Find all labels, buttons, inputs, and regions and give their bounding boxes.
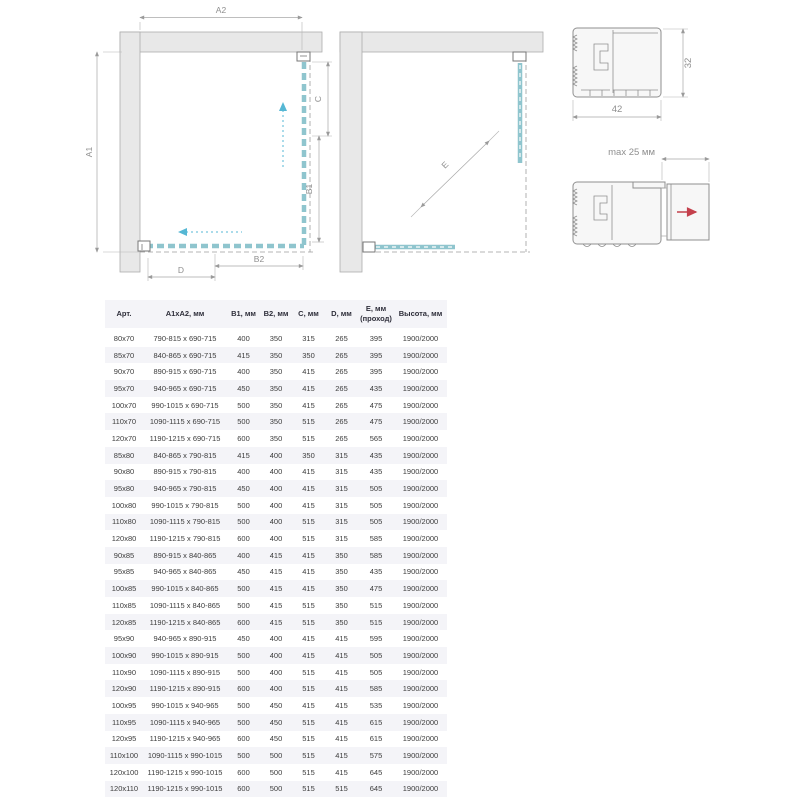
table-cell: 500 bbox=[227, 697, 260, 714]
table-cell: 415 bbox=[325, 764, 358, 781]
table-cell: 1900/2000 bbox=[394, 597, 447, 614]
table-cell: 595 bbox=[358, 630, 394, 647]
table-cell: 415 bbox=[325, 697, 358, 714]
table-cell: 110x85 bbox=[105, 597, 143, 614]
table-cell: 500 bbox=[227, 580, 260, 597]
table-cell: 1900/2000 bbox=[394, 580, 447, 597]
dimension-42: 42 bbox=[573, 100, 661, 121]
table-cell: 415 bbox=[325, 731, 358, 748]
table-cell: 500 bbox=[227, 664, 260, 681]
table-cell: 120x100 bbox=[105, 764, 143, 781]
spec-sheet-page: A2 A1 C B1 bbox=[0, 0, 800, 800]
table-cell: 505 bbox=[358, 514, 394, 531]
table-cell: 840-865 x 690-715 bbox=[143, 347, 227, 364]
table-cell: 90x70 bbox=[105, 363, 143, 380]
table-cell: 435 bbox=[358, 447, 394, 464]
dimension-b1: B1 bbox=[304, 136, 324, 242]
plan-view-closed: A2 A1 C B1 bbox=[84, 5, 332, 281]
table-cell: 1900/2000 bbox=[394, 329, 447, 347]
table-cell: 400 bbox=[227, 464, 260, 481]
table-cell: 1900/2000 bbox=[394, 614, 447, 631]
table-cell: 1190-1215 x 790-815 bbox=[143, 530, 227, 547]
table-cell: 515 bbox=[292, 731, 325, 748]
table-cell: 940-965 x 790-815 bbox=[143, 480, 227, 497]
table-cell: 415 bbox=[325, 747, 358, 764]
table-cell: 515 bbox=[292, 781, 325, 798]
table-cell: 535 bbox=[358, 697, 394, 714]
table-cell: 1900/2000 bbox=[394, 514, 447, 531]
table-cell: 1190-1215 x 840-865 bbox=[143, 614, 227, 631]
table-cell: 1900/2000 bbox=[394, 363, 447, 380]
table-cell: 1090-1115 x 940-965 bbox=[143, 714, 227, 731]
table-row: 90x70890-915 x 690-715400350415265395190… bbox=[105, 363, 447, 380]
table-cell: 400 bbox=[260, 647, 292, 664]
profile-body bbox=[573, 182, 661, 244]
table-cell: 400 bbox=[227, 363, 260, 380]
table-cell: 350 bbox=[260, 329, 292, 347]
table-cell: 400 bbox=[260, 630, 292, 647]
table-cell: 515 bbox=[358, 597, 394, 614]
table-row: 100x80990-1015 x 790-8155004004153155051… bbox=[105, 497, 447, 514]
top-wall bbox=[340, 32, 543, 52]
table-row: 100x90990-1015 x 890-9155004004154155051… bbox=[105, 647, 447, 664]
table-cell: 890-915 x 840-865 bbox=[143, 547, 227, 564]
table-cell: 505 bbox=[358, 497, 394, 514]
table-cell: 95x70 bbox=[105, 380, 143, 397]
dimension-b2-label: B2 bbox=[254, 254, 265, 264]
table-cell: 415 bbox=[292, 580, 325, 597]
dimension-a2-label: A2 bbox=[216, 5, 227, 15]
table-cell: 1900/2000 bbox=[394, 380, 447, 397]
table-cell: 890-915 x 690-715 bbox=[143, 363, 227, 380]
dimension-e: E bbox=[411, 131, 499, 217]
table-row: 120x1001190-1215 x 990-10156005005154156… bbox=[105, 764, 447, 781]
table-cell: 585 bbox=[358, 530, 394, 547]
slide-direction-arrow-left bbox=[178, 228, 242, 236]
dimension-42-label: 42 bbox=[612, 104, 623, 115]
table-cell: 450 bbox=[227, 564, 260, 581]
table-cell: 95x90 bbox=[105, 630, 143, 647]
column-header: Арт. bbox=[105, 300, 143, 329]
table-cell: 1090-1115 x 790-815 bbox=[143, 514, 227, 531]
profile-flange bbox=[633, 182, 665, 188]
table-cell: 350 bbox=[292, 347, 325, 364]
column-header: В2, мм bbox=[260, 300, 292, 329]
table-cell: 500 bbox=[227, 647, 260, 664]
table-cell: 415 bbox=[325, 664, 358, 681]
slide-direction-arrow-up bbox=[279, 102, 287, 168]
table-cell: 1900/2000 bbox=[394, 680, 447, 697]
table-cell: 120x85 bbox=[105, 614, 143, 631]
table-row: 120x951190-1215 x 940-965600450515415615… bbox=[105, 731, 447, 748]
dimension-c-label: C bbox=[313, 96, 323, 102]
table-cell: 500 bbox=[227, 397, 260, 414]
table-cell: 415 bbox=[260, 580, 292, 597]
table-cell: 515 bbox=[292, 714, 325, 731]
table-cell: 100x90 bbox=[105, 647, 143, 664]
table-cell: 110x70 bbox=[105, 413, 143, 430]
table-cell: 415 bbox=[292, 380, 325, 397]
table-cell: 415 bbox=[227, 447, 260, 464]
table-cell: 450 bbox=[227, 630, 260, 647]
table-cell: 350 bbox=[325, 614, 358, 631]
table-cell: 600 bbox=[227, 680, 260, 697]
table-row: 85x80840-865 x 790-815415400350315435190… bbox=[105, 447, 447, 464]
dimension-32-label: 32 bbox=[683, 58, 694, 69]
table-row: 95x85940-965 x 840-865450415415350435190… bbox=[105, 564, 447, 581]
table-cell: 415 bbox=[292, 630, 325, 647]
table-row: 100x95990-1015 x 940-9655004504154155351… bbox=[105, 697, 447, 714]
table-cell: 350 bbox=[292, 447, 325, 464]
table-cell: 1190-1215 x 990-1015 bbox=[143, 764, 227, 781]
table-cell: 600 bbox=[227, 614, 260, 631]
table-cell: 415 bbox=[260, 614, 292, 631]
left-wall bbox=[340, 32, 362, 272]
table-row: 120x901190-1215 x 890-915600400515415585… bbox=[105, 680, 447, 697]
table-cell: 400 bbox=[260, 530, 292, 547]
table-cell: 575 bbox=[358, 747, 394, 764]
table-cell: 515 bbox=[325, 781, 358, 798]
profile-body bbox=[573, 28, 661, 97]
table-cell: 90x85 bbox=[105, 547, 143, 564]
table-cell: 265 bbox=[325, 380, 358, 397]
table-cell: 100x70 bbox=[105, 397, 143, 414]
dimension-d: D bbox=[148, 258, 215, 281]
column-header: С, мм bbox=[292, 300, 325, 329]
column-header: Е, мм (проход) bbox=[358, 300, 394, 329]
table-row: 110x701090-1115 x 690-715500350515265475… bbox=[105, 413, 447, 430]
table-cell: 1900/2000 bbox=[394, 781, 447, 798]
table-cell: 1900/2000 bbox=[394, 430, 447, 447]
table-cell: 415 bbox=[325, 680, 358, 697]
dimension-b1-label: B1 bbox=[304, 184, 314, 195]
table-cell: 110x100 bbox=[105, 747, 143, 764]
table-cell: 350 bbox=[325, 580, 358, 597]
table-cell: 350 bbox=[260, 347, 292, 364]
table-cell: 315 bbox=[292, 329, 325, 347]
table-cell: 415 bbox=[292, 647, 325, 664]
table-cell: 400 bbox=[260, 447, 292, 464]
dimension-b2: B2 bbox=[215, 254, 303, 281]
table-cell: 350 bbox=[260, 430, 292, 447]
table-cell: 1900/2000 bbox=[394, 497, 447, 514]
table-cell: 415 bbox=[292, 464, 325, 481]
table-cell: 400 bbox=[260, 664, 292, 681]
dimension-e-label: E bbox=[439, 159, 450, 170]
table-cell: 120x70 bbox=[105, 430, 143, 447]
table-row: 110x1001090-1115 x 990-10155005005154155… bbox=[105, 747, 447, 764]
header-row: Арт.А1хА2, ммВ1, ммВ2, ммС, ммD, ммЕ, мм… bbox=[105, 300, 447, 329]
table-cell: 645 bbox=[358, 764, 394, 781]
table-cell: 475 bbox=[358, 413, 394, 430]
table-cell: 400 bbox=[260, 480, 292, 497]
table-cell: 940-965 x 840-865 bbox=[143, 564, 227, 581]
table-cell: 515 bbox=[292, 430, 325, 447]
table-cell: 450 bbox=[260, 697, 292, 714]
table-cell: 415 bbox=[292, 697, 325, 714]
table-cell: 350 bbox=[260, 413, 292, 430]
top-wall-bracket bbox=[513, 52, 526, 61]
table-cell: 890-915 x 790-815 bbox=[143, 464, 227, 481]
table-row: 90x85890-915 x 840-865400415415350585190… bbox=[105, 547, 447, 564]
table-cell: 475 bbox=[358, 580, 394, 597]
table-cell: 120x80 bbox=[105, 530, 143, 547]
table-cell: 600 bbox=[227, 530, 260, 547]
table-cell: 350 bbox=[260, 380, 292, 397]
table-row: 120x851190-1215 x 840-865600415515350515… bbox=[105, 614, 447, 631]
table-cell: 265 bbox=[325, 397, 358, 414]
table-cell: 515 bbox=[358, 614, 394, 631]
table-cell: 515 bbox=[292, 530, 325, 547]
table-cell: 415 bbox=[325, 630, 358, 647]
table-cell: 315 bbox=[325, 530, 358, 547]
table-cell: 1090-1115 x 990-1015 bbox=[143, 747, 227, 764]
top-wall-bracket bbox=[297, 52, 310, 61]
table-cell: 315 bbox=[325, 480, 358, 497]
table-cell: 315 bbox=[325, 514, 358, 531]
table-cell: 790-815 x 690-715 bbox=[143, 329, 227, 347]
table-cell: 500 bbox=[227, 413, 260, 430]
table-cell: 435 bbox=[358, 380, 394, 397]
table-cell: 645 bbox=[358, 781, 394, 798]
table-cell: 110x95 bbox=[105, 714, 143, 731]
table-cell: 840-865 x 790-815 bbox=[143, 447, 227, 464]
table-cell: 265 bbox=[325, 413, 358, 430]
table-cell: 315 bbox=[325, 464, 358, 481]
table-cell: 515 bbox=[292, 664, 325, 681]
table-cell: 500 bbox=[260, 747, 292, 764]
table-cell: 1190-1215 x 990-1015 bbox=[143, 781, 227, 798]
table-cell: 450 bbox=[227, 480, 260, 497]
table-cell: 1090-1115 x 890-915 bbox=[143, 664, 227, 681]
table-cell: 1900/2000 bbox=[394, 447, 447, 464]
table-row: 120x801190-1215 x 790-815600400515315585… bbox=[105, 530, 447, 547]
column-header: Высота, мм bbox=[394, 300, 447, 329]
table-row: 95x80940-965 x 790-815450400415315505190… bbox=[105, 480, 447, 497]
table-cell: 990-1015 x 940-965 bbox=[143, 697, 227, 714]
table-row: 85x70840-865 x 690-715415350350265395190… bbox=[105, 347, 447, 364]
table-cell: 505 bbox=[358, 664, 394, 681]
table-cell: 85x80 bbox=[105, 447, 143, 464]
table-cell: 400 bbox=[260, 514, 292, 531]
table-cell: 85x70 bbox=[105, 347, 143, 364]
table-cell: 1190-1215 x 890-915 bbox=[143, 680, 227, 697]
table-cell: 415 bbox=[292, 547, 325, 564]
table-cell: 350 bbox=[325, 564, 358, 581]
table-cell: 1900/2000 bbox=[394, 731, 447, 748]
table-cell: 395 bbox=[358, 347, 394, 364]
table-row: 90x80890-915 x 790-815400400415315435190… bbox=[105, 464, 447, 481]
table-cell: 400 bbox=[260, 464, 292, 481]
table-cell: 450 bbox=[227, 380, 260, 397]
table-row: 110x901090-1115 x 890-915500400515415505… bbox=[105, 664, 447, 681]
table-cell: 1900/2000 bbox=[394, 547, 447, 564]
table-cell: 990-1015 x 890-915 bbox=[143, 647, 227, 664]
table-row: 80x70790-815 x 690-715400350315265395190… bbox=[105, 329, 447, 347]
dimension-32: 32 bbox=[663, 29, 694, 97]
table-cell: 435 bbox=[358, 464, 394, 481]
table-cell: 1900/2000 bbox=[394, 397, 447, 414]
table-cell: 120x110 bbox=[105, 781, 143, 798]
table-cell: 415 bbox=[325, 647, 358, 664]
table-row: 100x85990-1015 x 840-8655004154153504751… bbox=[105, 580, 447, 597]
table-cell: 500 bbox=[227, 497, 260, 514]
bottom-wall-bracket bbox=[138, 241, 150, 251]
table-cell: 1900/2000 bbox=[394, 480, 447, 497]
table-cell: 100x85 bbox=[105, 580, 143, 597]
table-cell: 1900/2000 bbox=[394, 347, 447, 364]
dimension-max25: max 25 мм bbox=[608, 147, 709, 182]
table-cell: 515 bbox=[292, 614, 325, 631]
table-cell: 600 bbox=[227, 781, 260, 798]
profile-extension-detail: max 25 мм bbox=[573, 147, 709, 247]
table-cell: 415 bbox=[292, 497, 325, 514]
table-cell: 990-1015 x 840-865 bbox=[143, 580, 227, 597]
table-cell: 395 bbox=[358, 363, 394, 380]
table-cell: 1900/2000 bbox=[394, 464, 447, 481]
table-cell: 95x85 bbox=[105, 564, 143, 581]
table-cell: 585 bbox=[358, 547, 394, 564]
table-cell: 80x70 bbox=[105, 329, 143, 347]
table-cell: 110x80 bbox=[105, 514, 143, 531]
table-cell: 450 bbox=[260, 714, 292, 731]
table-cell: 615 bbox=[358, 731, 394, 748]
technical-drawings: A2 A1 C B1 bbox=[0, 0, 800, 298]
spec-table: Арт.А1хА2, ммВ1, ммВ2, ммС, ммD, ммЕ, мм… bbox=[105, 300, 447, 797]
table-cell: 515 bbox=[292, 514, 325, 531]
table-cell: 500 bbox=[227, 714, 260, 731]
table-cell: 990-1015 x 690-715 bbox=[143, 397, 227, 414]
spec-table-container: Арт.А1хА2, ммВ1, ммВ2, ммС, ммD, ммЕ, мм… bbox=[105, 300, 447, 797]
table-cell: 1900/2000 bbox=[394, 530, 447, 547]
table-cell: 400 bbox=[227, 547, 260, 564]
dimension-a1-label: A1 bbox=[84, 147, 94, 158]
table-cell: 265 bbox=[325, 363, 358, 380]
table-cell: 110x90 bbox=[105, 664, 143, 681]
column-header: D, мм bbox=[325, 300, 358, 329]
table-cell: 1090-1115 x 840-865 bbox=[143, 597, 227, 614]
table-cell: 500 bbox=[260, 764, 292, 781]
table-cell: 100x80 bbox=[105, 497, 143, 514]
table-cell: 515 bbox=[292, 747, 325, 764]
table-cell: 415 bbox=[260, 564, 292, 581]
table-cell: 435 bbox=[358, 564, 394, 581]
table-cell: 415 bbox=[292, 564, 325, 581]
table-cell: 100x95 bbox=[105, 697, 143, 714]
table-cell: 475 bbox=[358, 397, 394, 414]
table-cell: 450 bbox=[260, 731, 292, 748]
table-cell: 120x90 bbox=[105, 680, 143, 697]
spec-table-body: 80x70790-815 x 690-715400350315265395190… bbox=[105, 329, 447, 797]
table-cell: 1900/2000 bbox=[394, 714, 447, 731]
table-cell: 1900/2000 bbox=[394, 747, 447, 764]
table-cell: 415 bbox=[227, 347, 260, 364]
table-cell: 265 bbox=[325, 430, 358, 447]
table-row: 110x951090-1115 x 940-965500450515415615… bbox=[105, 714, 447, 731]
dimension-max25-label: max 25 мм bbox=[608, 147, 655, 158]
column-header: В1, мм bbox=[227, 300, 260, 329]
table-cell: 315 bbox=[325, 497, 358, 514]
table-cell: 1900/2000 bbox=[394, 764, 447, 781]
table-cell: 415 bbox=[292, 480, 325, 497]
table-cell: 265 bbox=[325, 329, 358, 347]
table-cell: 515 bbox=[292, 413, 325, 430]
table-cell: 990-1015 x 790-815 bbox=[143, 497, 227, 514]
table-cell: 95x80 bbox=[105, 480, 143, 497]
table-row: 95x70940-965 x 690-715450350415265435190… bbox=[105, 380, 447, 397]
table-cell: 940-965 x 890-915 bbox=[143, 630, 227, 647]
plan-view-open: E bbox=[340, 32, 543, 272]
table-cell: 940-965 x 690-715 bbox=[143, 380, 227, 397]
table-cell: 600 bbox=[227, 430, 260, 447]
table-cell: 1900/2000 bbox=[394, 413, 447, 430]
table-cell: 415 bbox=[260, 597, 292, 614]
table-cell: 400 bbox=[227, 329, 260, 347]
table-cell: 90x80 bbox=[105, 464, 143, 481]
table-cell: 1900/2000 bbox=[394, 630, 447, 647]
table-cell: 1190-1215 x 690-715 bbox=[143, 430, 227, 447]
column-header: А1хА2, мм bbox=[143, 300, 227, 329]
table-cell: 565 bbox=[358, 430, 394, 447]
table-cell: 1190-1215 x 940-965 bbox=[143, 731, 227, 748]
table-cell: 350 bbox=[260, 363, 292, 380]
table-cell: 350 bbox=[260, 397, 292, 414]
dimension-c: C bbox=[312, 62, 332, 136]
table-cell: 500 bbox=[260, 781, 292, 798]
table-cell: 615 bbox=[358, 714, 394, 731]
table-cell: 1900/2000 bbox=[394, 564, 447, 581]
table-cell: 505 bbox=[358, 647, 394, 664]
profile-cross-section: 32 42 bbox=[573, 28, 694, 121]
table-cell: 505 bbox=[358, 480, 394, 497]
table-cell: 265 bbox=[325, 347, 358, 364]
table-cell: 600 bbox=[227, 764, 260, 781]
table-cell: 1900/2000 bbox=[394, 697, 447, 714]
table-cell: 400 bbox=[260, 497, 292, 514]
table-cell: 515 bbox=[292, 680, 325, 697]
table-cell: 500 bbox=[227, 514, 260, 531]
table-cell: 395 bbox=[358, 329, 394, 347]
table-row: 120x701190-1215 x 690-715600350515265565… bbox=[105, 430, 447, 447]
table-row: 110x851090-1115 x 840-865500415515350515… bbox=[105, 597, 447, 614]
table-cell: 415 bbox=[292, 397, 325, 414]
table-cell: 315 bbox=[325, 447, 358, 464]
table-row: 100x70990-1015 x 690-7155003504152654751… bbox=[105, 397, 447, 414]
table-cell: 120x95 bbox=[105, 731, 143, 748]
table-cell: 1090-1115 x 690-715 bbox=[143, 413, 227, 430]
dimension-d-label: D bbox=[178, 265, 184, 275]
table-row: 110x801090-1115 x 790-815500400515315505… bbox=[105, 514, 447, 531]
top-wall bbox=[120, 32, 322, 52]
table-cell: 515 bbox=[292, 764, 325, 781]
table-cell: 1900/2000 bbox=[394, 647, 447, 664]
table-cell: 350 bbox=[325, 547, 358, 564]
table-cell: 500 bbox=[227, 747, 260, 764]
table-cell: 515 bbox=[292, 597, 325, 614]
table-cell: 415 bbox=[292, 363, 325, 380]
bottom-wall-bracket bbox=[363, 242, 375, 252]
table-cell: 500 bbox=[227, 597, 260, 614]
table-cell: 1900/2000 bbox=[394, 664, 447, 681]
table-row: 95x90940-965 x 890-915450400415415595190… bbox=[105, 630, 447, 647]
table-cell: 600 bbox=[227, 731, 260, 748]
table-cell: 350 bbox=[325, 597, 358, 614]
table-cell: 415 bbox=[325, 714, 358, 731]
left-wall bbox=[120, 32, 140, 272]
table-row: 120x1101190-1215 x 990-10156005005155156… bbox=[105, 781, 447, 798]
table-cell: 415 bbox=[260, 547, 292, 564]
table-cell: 400 bbox=[260, 680, 292, 697]
